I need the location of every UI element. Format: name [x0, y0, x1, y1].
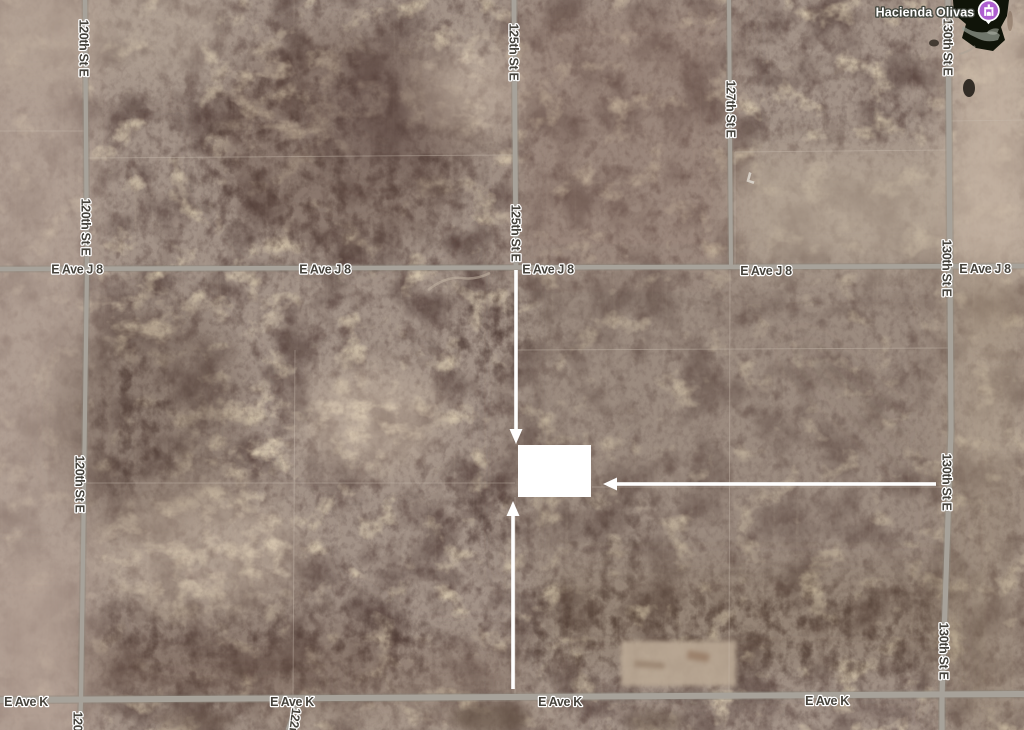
svg-text:130th St E: 130th St E [941, 19, 955, 76]
svg-text:E Ave J 8: E Ave J 8 [522, 263, 574, 277]
svg-text:130th St E: 130th St E [940, 454, 954, 511]
svg-text:130th St E: 130th St E [937, 623, 951, 680]
svg-text:120th St E: 120th St E [77, 20, 91, 77]
svg-text:Hacienda Olivas: Hacienda Olivas [876, 6, 975, 20]
svg-text:125th St E: 125th St E [509, 205, 523, 262]
svg-text:E Ave J 8: E Ave J 8 [959, 262, 1011, 276]
svg-text:120th St E: 120th St E [71, 712, 85, 730]
svg-text:E Ave K: E Ave K [538, 695, 582, 709]
svg-text:125th St E: 125th St E [507, 24, 521, 81]
svg-text:E Ave K: E Ave K [4, 695, 48, 709]
svg-text:120th St E: 120th St E [73, 456, 87, 513]
svg-text:130th St E: 130th St E [940, 240, 954, 297]
svg-text:E Ave K: E Ave K [805, 694, 849, 708]
svg-text:E Ave J 8: E Ave J 8 [51, 263, 103, 277]
svg-text:127th St E: 127th St E [724, 81, 738, 138]
svg-text:E Ave J 8: E Ave J 8 [299, 263, 351, 277]
svg-text:120th St E: 120th St E [79, 199, 93, 256]
svg-text:E Ave J 8: E Ave J 8 [740, 264, 792, 278]
